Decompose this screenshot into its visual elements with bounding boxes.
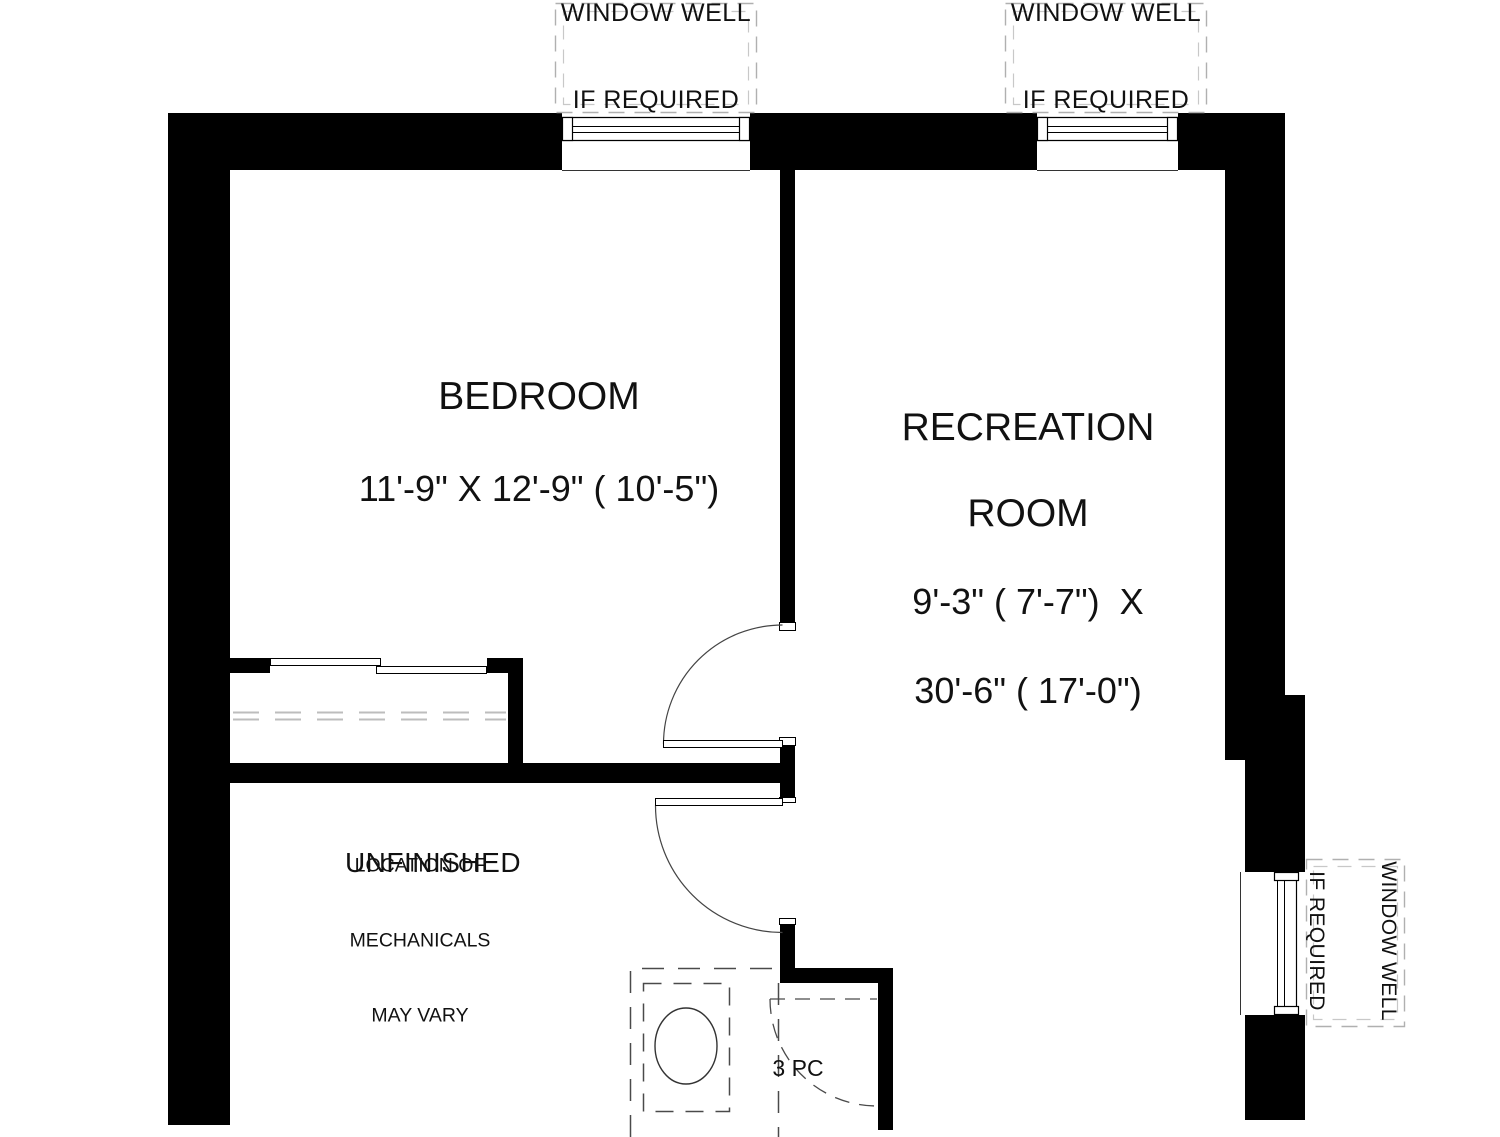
mechanicals-note: LOCATION OF MECHANICALS MAY VARY [350,804,491,1079]
unfinished-door-leaf [656,799,783,806]
recreation-room-label: RECREATION ROOM 9'-3" ( 7'-7") X 30'-6" … [902,367,1155,753]
unfinished-door [656,799,783,933]
window-well-note-line2: IF REQUIRED [561,86,751,115]
recreation-room-name-line1: RECREATION [902,403,1155,453]
window-well-note-line2: IF REQUIRED [1011,86,1201,115]
roughin-label: 3 PC ROUGH-IN [740,1003,856,1137]
floor-plan: WINDOW WELL IF REQUIRED WINDOW WELL IF R… [0,0,1500,1137]
bedroom-door-leaf [664,741,783,748]
window-well-note-line2: IF REQUIRED [1304,861,1328,1021]
window-well-note-line1: WINDOW WELL [1011,0,1201,28]
unfinished-door-swing-arc [656,806,783,933]
window-well-note-line1: WINDOW WELL [1376,861,1400,1021]
mechanicals-note-line2: MECHANICALS [350,929,491,954]
closet-sliding-doors [271,659,487,674]
mechanicals-note-line1: LOCATION OF [350,854,491,879]
bedroom-label: BEDROOM 11'-9" X 12'-9" ( 10'-5") [359,338,719,548]
recreation-room-name-line2: ROOM [902,489,1155,539]
roughin-fixture [655,1008,717,1084]
window-well-note-line1: WINDOW WELL [561,0,751,28]
window-well-note-top-right: WINDOW WELL IF REQUIRED [1011,0,1201,173]
bedroom-dimensions: 11'-9" X 12'-9" ( 10'-5") [359,466,719,512]
window-well-note-right: WINDOW WELL IF REQUIRED [1256,861,1448,1021]
mechanicals-note-line3: MAY VARY [350,1004,491,1029]
closet-shelf-dashed-line [233,713,506,720]
bedroom-door [664,625,783,748]
roughin-label-line1: 3 PC [740,1055,856,1081]
bedroom-door-swing-arc [664,625,783,744]
window-well-note-top-left: WINDOW WELL IF REQUIRED [561,0,751,173]
roughin-label-line2: ROUGH-IN [740,1133,856,1137]
recreation-room-dimensions-line1: 9'-3" ( 7'-7") X [902,575,1155,628]
bedroom-name: BEDROOM [359,374,719,420]
recreation-room-dimensions-line2: 30'-6" ( 17'-0") [902,664,1155,717]
